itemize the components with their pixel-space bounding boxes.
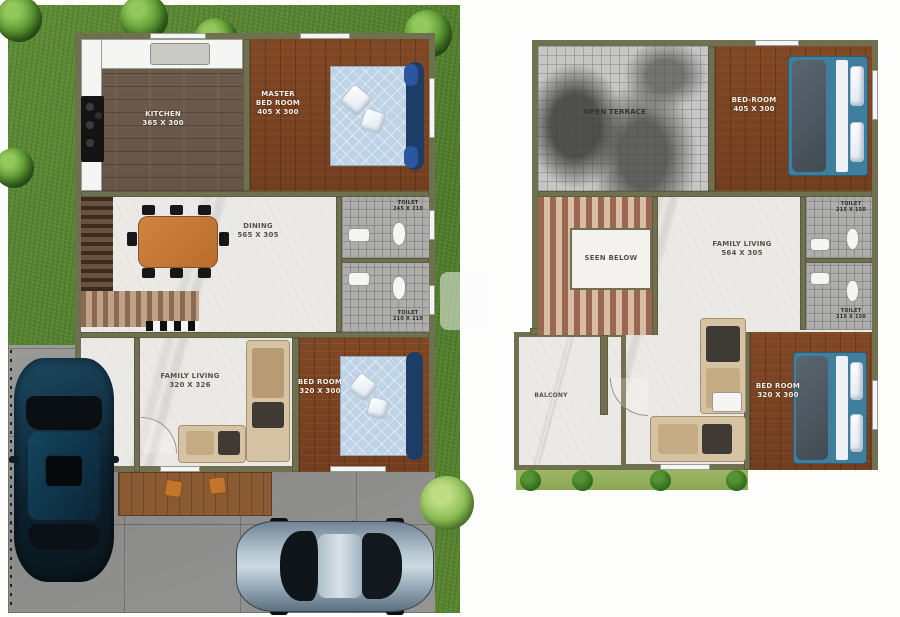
garden-strip [516, 470, 748, 490]
bush [520, 470, 541, 491]
toilet-bottom-first-label: TOILET 215 X 150 [832, 308, 870, 321]
bush [572, 470, 593, 491]
bedroom-top-pillow [850, 122, 864, 162]
open-terrace-label: OPEN TERRACE [570, 108, 660, 117]
bush [650, 470, 671, 491]
window [872, 70, 878, 120]
open-terrace-floor [538, 46, 708, 191]
bedroom-top-name: BED-ROOM [732, 96, 777, 104]
toilet-bottom-first-wc [846, 280, 859, 302]
bedroom-top-sheet [836, 60, 848, 172]
toilet-bottom-first-dim: 215 X 150 [832, 314, 870, 320]
sofa-first-cushion-dark [702, 424, 732, 454]
bedroom-top-pillow [850, 66, 864, 106]
bedroom-bottom-pillow [850, 362, 863, 400]
wall [600, 335, 608, 415]
balcony-outline [514, 332, 626, 470]
bedroom-bottom-duvet [796, 356, 828, 460]
bedroom-bottom-sheet [836, 356, 848, 460]
toilet-bottom-first-name: TOILET [841, 308, 862, 314]
bedroom-top-dim: 405 X 300 [726, 105, 782, 114]
balcony-label: BALCONY [524, 392, 578, 400]
toilet-top-first-name: TOILET [841, 201, 862, 207]
stairwell-void: SEEN BELOW [570, 228, 652, 290]
bedroom-bottom-pillow [850, 414, 863, 452]
toilet-top-first-label: TOILET 215 X 150 [832, 201, 870, 214]
window [755, 40, 799, 46]
family-living-first-dim: 564 X 305 [700, 249, 784, 258]
sofa-first-cushion-dark [706, 326, 740, 362]
toilet-top-first-sink [810, 238, 830, 251]
family-living-first-label: FAMILY LIVING 564 X 305 [700, 240, 784, 258]
bedroom-bottom-name: BED ROOM [756, 382, 800, 390]
bush [726, 470, 747, 491]
first-floor-plan: OPEN TERRACE BED-ROOM 405 X 300 SEEN BEL… [0, 0, 900, 617]
toilet-top-first-dim: 215 X 150 [832, 207, 870, 213]
bedroom-bottom-dim: 320 X 300 [752, 391, 804, 400]
side-table [712, 392, 742, 412]
stairwell-label: SEEN BELOW [581, 254, 641, 263]
wall [652, 197, 658, 335]
sofa-first-cushion [658, 424, 698, 454]
balcony-name: BALCONY [534, 392, 567, 399]
open-terrace-name: OPEN TERRACE [584, 108, 646, 116]
window [872, 380, 878, 430]
floor-plan-image: KITCHEN 365 X 300 MASTER BED ROOM 405 X … [0, 0, 900, 617]
bedroom-top-duvet [792, 60, 826, 172]
toilet-top-first-wc [846, 228, 859, 250]
wall [806, 258, 872, 263]
stairwell-text: SEEN BELOW [585, 254, 638, 262]
toilet-bottom-first-sink [810, 272, 830, 285]
bedroom-top-label: BED-ROOM 405 X 300 [726, 96, 782, 114]
wall [708, 46, 715, 191]
family-living-first-name: FAMILY LIVING [712, 240, 771, 248]
bedroom-bottom-label: BED ROOM 320 X 300 [752, 382, 804, 400]
